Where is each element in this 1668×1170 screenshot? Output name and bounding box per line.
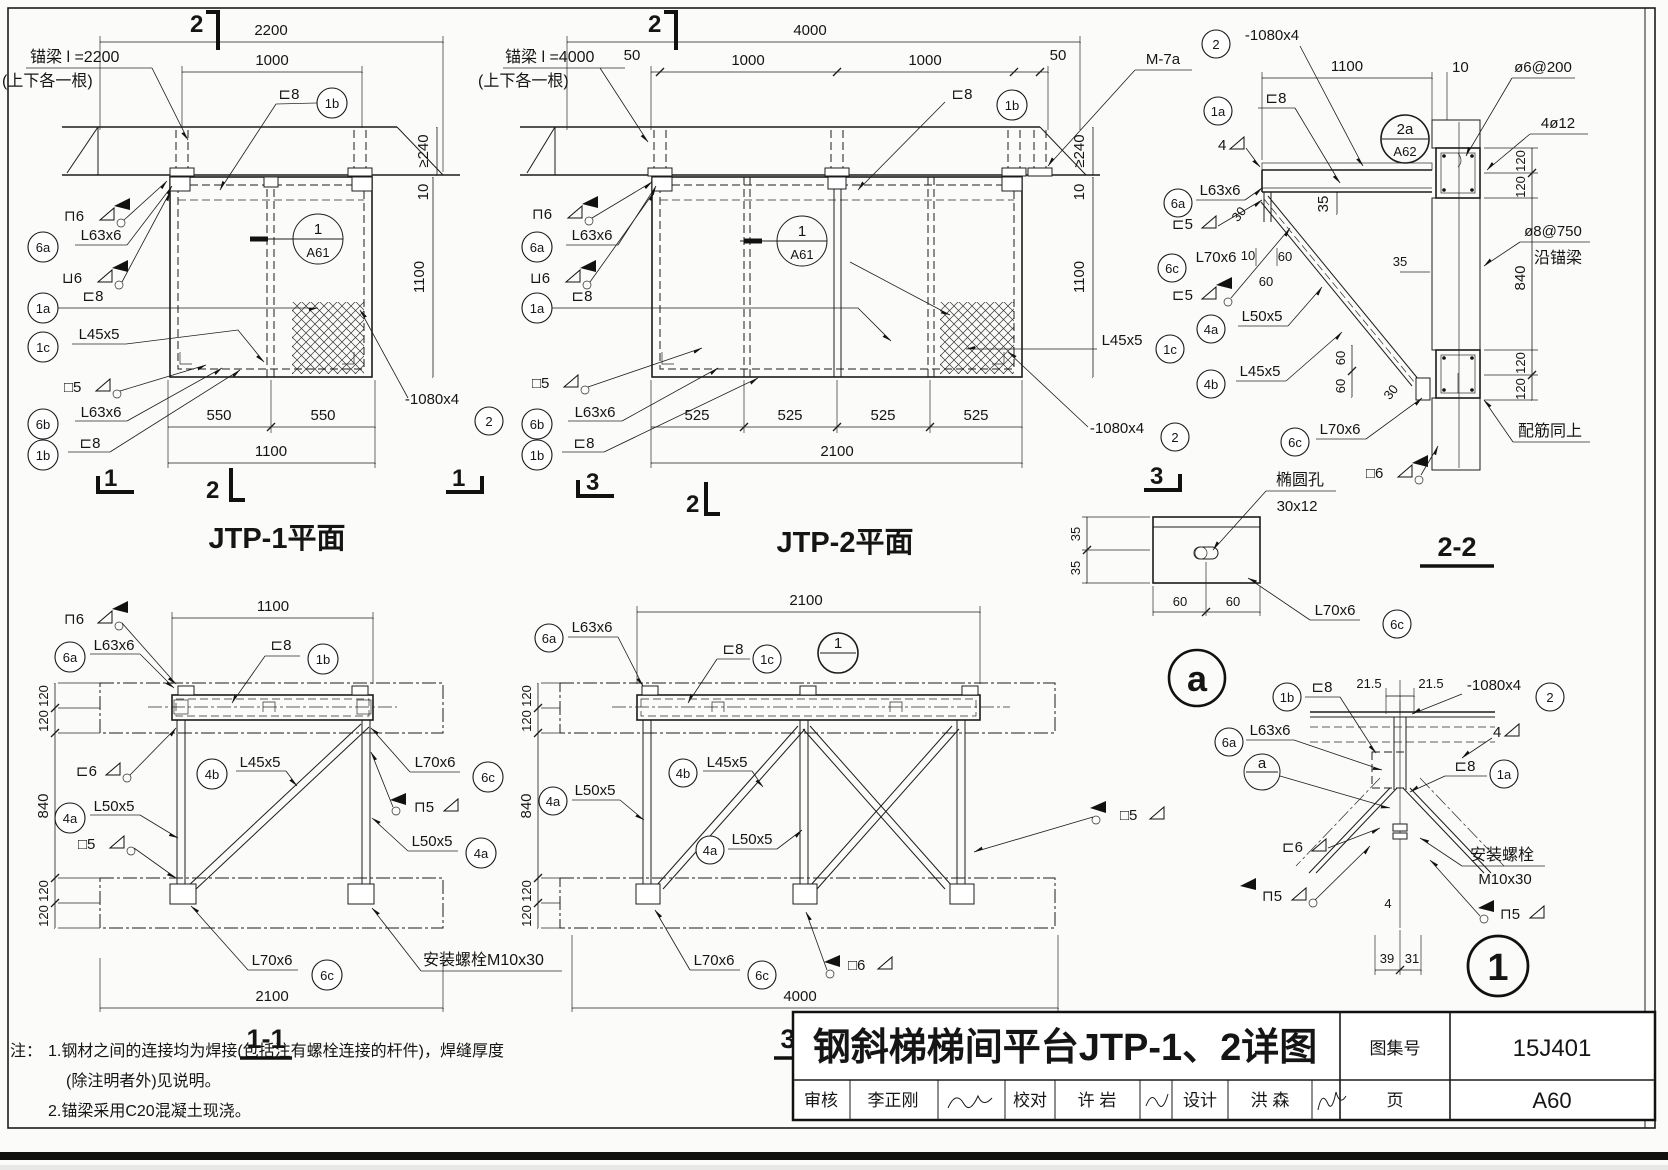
svg-text:a: a bbox=[1258, 755, 1267, 772]
callout-4a-left: 4a bbox=[539, 787, 567, 815]
rebar-phi6: ø6@200 bbox=[1514, 59, 1572, 76]
svg-text:10: 10 bbox=[415, 184, 432, 201]
svg-text:⊏8: ⊏8 bbox=[723, 641, 744, 658]
weld-6-top: ⊓6 bbox=[64, 181, 167, 227]
svg-text:a: a bbox=[1187, 658, 1208, 699]
callout-1c: 1c bbox=[28, 332, 58, 362]
svg-text:4b: 4b bbox=[1204, 377, 1218, 392]
svg-text:840: 840 bbox=[1512, 265, 1529, 290]
title-block: 钢斜梯梯间平台JTP-1、2详图 图集号 15J401 审核 李正刚 校对 许 … bbox=[793, 1012, 1655, 1120]
detail-ref-a61: 1 A61 bbox=[740, 216, 827, 266]
design-name: 洪 森 bbox=[1251, 1091, 1290, 1110]
svg-text:120: 120 bbox=[36, 685, 51, 707]
svg-text:⊏8: ⊏8 bbox=[271, 637, 292, 654]
svg-text:525: 525 bbox=[870, 407, 895, 424]
svg-text:120: 120 bbox=[519, 710, 534, 732]
svg-text:120: 120 bbox=[519, 905, 534, 927]
svg-text:6b: 6b bbox=[530, 417, 544, 432]
svg-text:1: 1 bbox=[104, 465, 117, 492]
svg-text:6c: 6c bbox=[481, 770, 495, 785]
svg-text:1: 1 bbox=[834, 635, 842, 652]
svg-text:1b: 1b bbox=[36, 448, 50, 463]
detail-ref-a62: 2a A62 bbox=[1381, 115, 1429, 163]
svg-text:6a: 6a bbox=[63, 650, 78, 665]
callout-6a: 6a bbox=[28, 232, 58, 262]
weld-4: 4 bbox=[1462, 724, 1519, 758]
svg-text:1b: 1b bbox=[1280, 690, 1294, 705]
weld-6-left: ⊏6 bbox=[1282, 828, 1380, 856]
svg-text:⊓5: ⊓5 bbox=[1262, 888, 1282, 905]
svg-text:⊓6: ⊓6 bbox=[532, 206, 552, 223]
svg-text:6a: 6a bbox=[530, 240, 545, 255]
svg-text:≥240: ≥240 bbox=[415, 134, 432, 167]
callout-1b: 1b bbox=[997, 90, 1027, 120]
svg-text:120: 120 bbox=[1513, 378, 1528, 400]
atlas-label: 图集号 bbox=[1370, 1039, 1421, 1058]
callout-6a: 6a bbox=[522, 232, 552, 262]
weld-6-box: □6 bbox=[806, 912, 892, 978]
svg-text:4a: 4a bbox=[474, 846, 489, 861]
svg-text:6b: 6b bbox=[36, 417, 50, 432]
svg-text:1000: 1000 bbox=[908, 52, 941, 69]
svg-text:6c: 6c bbox=[755, 968, 769, 983]
svg-text:6c: 6c bbox=[320, 968, 334, 983]
svg-text:L50x5: L50x5 bbox=[1242, 308, 1283, 325]
svg-text:1: 1 bbox=[798, 223, 806, 240]
svg-text:L45x5: L45x5 bbox=[1240, 363, 1281, 380]
svg-text:31: 31 bbox=[1405, 951, 1419, 966]
svg-text:L50x5: L50x5 bbox=[575, 782, 616, 799]
svg-text:30x12: 30x12 bbox=[1277, 498, 1318, 515]
notes-line1: 1.钢材之间的连接均为焊接(包括注有螺栓连接的杆件)，焊缝厚度 bbox=[48, 1042, 504, 1060]
weld-5: □5 bbox=[64, 365, 206, 398]
svg-text:6a: 6a bbox=[36, 240, 51, 255]
svg-text:⊔6: ⊔6 bbox=[62, 270, 82, 287]
svg-text:L63x6: L63x6 bbox=[572, 619, 613, 636]
check-name: 许 岩 bbox=[1078, 1091, 1117, 1110]
svg-text:120: 120 bbox=[36, 905, 51, 927]
svg-text:L63x6: L63x6 bbox=[572, 227, 613, 244]
part-channel8: ⊏8 bbox=[279, 86, 300, 103]
svg-text:35: 35 bbox=[1315, 196, 1332, 213]
review-name: 李正刚 bbox=[868, 1091, 919, 1110]
rebar-same: 配筋同上 bbox=[1518, 422, 1582, 440]
svg-text:2100: 2100 bbox=[820, 443, 853, 460]
sheet-title: 钢斜梯梯间平台JTP-1、2详图 bbox=[813, 1027, 1318, 1069]
svg-text:120: 120 bbox=[1513, 150, 1528, 172]
svg-text:⊓5: ⊓5 bbox=[414, 799, 434, 816]
rebar-phi8: ø8@750 bbox=[1524, 223, 1582, 240]
svg-text:1c: 1c bbox=[1163, 342, 1177, 357]
svg-text:□5: □5 bbox=[1120, 807, 1137, 824]
svg-text:⊏5: ⊏5 bbox=[1172, 287, 1193, 304]
svg-text:1b: 1b bbox=[316, 652, 330, 667]
svg-text:-1080x4: -1080x4 bbox=[1090, 420, 1144, 437]
svg-text:4a: 4a bbox=[703, 843, 718, 858]
svg-text:L50x5: L50x5 bbox=[732, 831, 773, 848]
rebar-4phi12: 4ø12 bbox=[1541, 115, 1575, 132]
svg-text:2: 2 bbox=[686, 491, 699, 518]
callout-6c-right: 6c bbox=[473, 762, 503, 792]
callout-4a-right: 4a bbox=[466, 838, 496, 868]
section-mark-2-top: 2 bbox=[190, 11, 218, 50]
weld-5: □5 bbox=[532, 348, 702, 394]
svg-text:6c: 6c bbox=[1165, 261, 1179, 276]
svg-text:L45x5: L45x5 bbox=[79, 326, 120, 343]
svg-text:35: 35 bbox=[1068, 561, 1083, 575]
svg-text:L70x6: L70x6 bbox=[1196, 249, 1237, 266]
callout-6c: 6c bbox=[1383, 610, 1411, 638]
svg-text:30: 30 bbox=[1380, 382, 1401, 403]
svg-text:2: 2 bbox=[648, 11, 661, 38]
notes-line3: 2.锚梁采用C20混凝土现浇。 bbox=[48, 1102, 251, 1120]
svg-text:(上下各一根): (上下各一根) bbox=[2, 72, 93, 90]
svg-text:525: 525 bbox=[963, 407, 988, 424]
jtp2-title: JTP-2平面 bbox=[777, 527, 914, 559]
svg-text:⊏8: ⊏8 bbox=[1312, 679, 1333, 696]
svg-text:35: 35 bbox=[1068, 527, 1083, 541]
callout-4a: 4a bbox=[1197, 315, 1225, 343]
svg-text:6a: 6a bbox=[1171, 196, 1186, 211]
callout-6c-upper: 6c bbox=[1158, 254, 1186, 282]
svg-text:1100: 1100 bbox=[255, 443, 287, 460]
callout-6b: 6b bbox=[28, 409, 58, 439]
callout-2: 2 bbox=[1161, 423, 1189, 451]
svg-text:⊓6: ⊓6 bbox=[64, 611, 84, 628]
callout-1b-2: 1b bbox=[28, 440, 58, 470]
dim-2200: 2200 bbox=[254, 22, 287, 39]
svg-text:□5: □5 bbox=[532, 375, 549, 392]
callout-1b: 1b bbox=[308, 644, 338, 674]
svg-text:60: 60 bbox=[1173, 594, 1187, 609]
svg-text:50: 50 bbox=[624, 47, 641, 64]
svg-text:21.5: 21.5 bbox=[1356, 676, 1381, 691]
callout-1c: 1c bbox=[753, 645, 781, 673]
svg-text:-1080x4: -1080x4 bbox=[1467, 677, 1521, 694]
svg-text:⊏5: ⊏5 bbox=[1172, 216, 1193, 233]
svg-text:2-2: 2-2 bbox=[1437, 532, 1476, 562]
svg-text:1100: 1100 bbox=[257, 598, 289, 615]
svg-text:L70x6: L70x6 bbox=[1320, 421, 1361, 438]
svg-text:2a: 2a bbox=[1397, 121, 1414, 138]
callout-2: 2 bbox=[1536, 683, 1564, 711]
section-mark-1-right: 1 bbox=[446, 465, 482, 492]
svg-text:4: 4 bbox=[1493, 724, 1501, 741]
detail-1: 1b ⊏8 21.521.5 -1080x4 2 6a L63x6 a 4 ⊏8… bbox=[1215, 676, 1564, 996]
notes-line2: (除注明者外)见说明。 bbox=[66, 1072, 221, 1090]
svg-text:1a: 1a bbox=[36, 301, 51, 316]
callout-1b: 1b bbox=[317, 88, 347, 118]
svg-text:2100: 2100 bbox=[255, 988, 288, 1005]
svg-text:30: 30 bbox=[1228, 204, 1249, 225]
svg-text:1: 1 bbox=[314, 221, 322, 238]
svg-text:1: 1 bbox=[452, 465, 465, 492]
svg-text:10: 10 bbox=[1071, 184, 1088, 201]
svg-text:L50x5: L50x5 bbox=[94, 798, 135, 815]
section-mark-3-left: 3 bbox=[578, 469, 614, 496]
svg-text:4a: 4a bbox=[1204, 322, 1219, 337]
callout-6a: 6a bbox=[1215, 728, 1243, 756]
anchor-beam-note: 锚梁 l =2200 bbox=[30, 48, 119, 66]
section-2-2: 2 -1080x4 1100 10 ø6@200 4ø12 1a ⊏8 4 2a… bbox=[1158, 27, 1590, 566]
callout-6a: 6a bbox=[55, 642, 85, 672]
hatch-area bbox=[292, 302, 364, 374]
svg-text:4a: 4a bbox=[63, 811, 78, 826]
svg-text:60: 60 bbox=[1278, 249, 1292, 264]
svg-text:⊏6: ⊏6 bbox=[1282, 839, 1303, 856]
svg-text:525: 525 bbox=[684, 407, 709, 424]
section-1-1: 1100 ⊓6 6a L63x6 ⊏8 1b 120 120 840 120 1… bbox=[35, 598, 562, 1058]
svg-text:L70x6: L70x6 bbox=[1315, 602, 1356, 619]
notes: 注： 1.钢材之间的连接均为焊接(包括注有螺栓连接的杆件)，焊缝厚度 (除注明者… bbox=[10, 1042, 504, 1120]
detail-ref-a: a bbox=[1244, 754, 1280, 790]
callout-1b-2: 1b bbox=[522, 440, 552, 470]
svg-text:4000: 4000 bbox=[793, 22, 826, 39]
svg-text:⊏8: ⊏8 bbox=[572, 288, 593, 305]
callout-1a: 1a bbox=[522, 293, 552, 323]
check-label: 校对 bbox=[1013, 1091, 1047, 1110]
svg-text:⊏8: ⊏8 bbox=[1455, 758, 1476, 775]
callout-6c-lower: 6c bbox=[1281, 428, 1309, 456]
svg-text:39: 39 bbox=[1380, 951, 1394, 966]
svg-text:525: 525 bbox=[777, 407, 802, 424]
jtp2-plan: 1 A61 4000 50 1000 1000 50 2 锚梁 l =4000 … bbox=[478, 11, 1192, 559]
svg-text:840: 840 bbox=[35, 793, 52, 818]
svg-text:≥240: ≥240 bbox=[1071, 134, 1088, 167]
rebar-column-upper bbox=[1436, 148, 1480, 198]
svg-text:L70x6: L70x6 bbox=[694, 952, 735, 969]
rebar-along: 沿锚梁 bbox=[1534, 249, 1582, 267]
part-plate: -1080x4 bbox=[405, 391, 459, 408]
svg-text:4: 4 bbox=[1218, 137, 1226, 154]
svg-text:2: 2 bbox=[190, 11, 203, 38]
part-m7a: M-7a bbox=[1146, 51, 1181, 68]
svg-text:2: 2 bbox=[206, 477, 219, 504]
svg-text:A62: A62 bbox=[1393, 144, 1416, 159]
svg-text:L45x5: L45x5 bbox=[707, 754, 748, 771]
svg-text:60: 60 bbox=[1226, 594, 1240, 609]
svg-text:L63x6: L63x6 bbox=[575, 404, 616, 421]
svg-text:⊓6: ⊓6 bbox=[64, 208, 84, 225]
svg-text:1a: 1a bbox=[1211, 104, 1226, 119]
bolt-full-label: 安装螺栓M10x30 bbox=[423, 951, 544, 969]
svg-text:60: 60 bbox=[1259, 274, 1273, 289]
drawing-sheet: 1 A61 2200 1000 2 锚梁 l =2200 (上下各一根) ⊏8 … bbox=[0, 0, 1668, 1165]
svg-text:4b: 4b bbox=[205, 767, 219, 782]
callout-6a: 6a bbox=[1164, 189, 1192, 217]
anchor-beam-note: 锚梁 l =4000 bbox=[505, 48, 594, 66]
drawing-canvas: 1 A61 2200 1000 2 锚梁 l =2200 (上下各一根) ⊏8 … bbox=[0, 0, 1668, 1165]
callout-1a: 1a bbox=[1490, 760, 1518, 788]
anchor-bolts bbox=[648, 130, 1052, 176]
weld-6-left: ⊏6 bbox=[76, 728, 176, 782]
callout-4a-mid: 4a bbox=[696, 836, 724, 864]
jtp1-plan: 1 A61 2200 1000 2 锚梁 l =2200 (上下各一根) ⊏8 … bbox=[2, 11, 503, 555]
svg-text:120: 120 bbox=[36, 710, 51, 732]
svg-text:4: 4 bbox=[1384, 896, 1391, 911]
svg-text:L63x6: L63x6 bbox=[81, 404, 122, 421]
detail-a-badge: a bbox=[1169, 650, 1225, 706]
callout-2: 2 bbox=[1202, 30, 1230, 58]
callout-4b: 4b bbox=[197, 759, 227, 789]
svg-text:⊏8: ⊏8 bbox=[1266, 90, 1287, 107]
svg-text:550: 550 bbox=[310, 407, 335, 424]
svg-text:L70x6: L70x6 bbox=[252, 952, 293, 969]
svg-text:1b: 1b bbox=[1005, 98, 1019, 113]
svg-text:1a: 1a bbox=[1497, 767, 1512, 782]
atlas-number: 15J401 bbox=[1513, 1035, 1592, 1062]
svg-text:4000: 4000 bbox=[783, 988, 816, 1005]
svg-text:60: 60 bbox=[1333, 351, 1348, 365]
hatch-area bbox=[940, 302, 1014, 374]
svg-text:10: 10 bbox=[1241, 248, 1255, 263]
svg-text:2: 2 bbox=[1171, 430, 1178, 445]
svg-text:6a: 6a bbox=[542, 631, 557, 646]
svg-text:⊓5: ⊓5 bbox=[1500, 906, 1520, 923]
svg-text:6c: 6c bbox=[1288, 435, 1302, 450]
svg-text:□6: □6 bbox=[1366, 465, 1383, 482]
page-label: 页 bbox=[1387, 1091, 1404, 1110]
svg-text:1c: 1c bbox=[36, 340, 50, 355]
notes-prefix: 注： bbox=[10, 1042, 42, 1060]
svg-text:2: 2 bbox=[1546, 690, 1553, 705]
weld-5-left: ⊓5 bbox=[1240, 846, 1370, 907]
svg-text:-1080x4: -1080x4 bbox=[1245, 27, 1299, 44]
svg-text:⊏6: ⊏6 bbox=[76, 763, 97, 780]
weld-5-b: ⊏5 bbox=[1172, 228, 1290, 306]
svg-text:1100: 1100 bbox=[1331, 58, 1363, 75]
svg-text:35: 35 bbox=[1393, 254, 1407, 269]
svg-text:A61: A61 bbox=[306, 245, 329, 260]
callout-1a: 1a bbox=[1204, 97, 1232, 125]
svg-text:2: 2 bbox=[1212, 37, 1219, 52]
weld-5-right: □5 bbox=[974, 801, 1164, 852]
rebar-column-lower bbox=[1436, 350, 1480, 398]
svg-text:840: 840 bbox=[518, 793, 535, 818]
svg-text:4b: 4b bbox=[676, 766, 690, 781]
svg-text:L63x6: L63x6 bbox=[1250, 722, 1291, 739]
callout-6b: 6b bbox=[522, 409, 552, 439]
svg-text:3: 3 bbox=[586, 469, 599, 496]
detail-ref-1: 1 bbox=[818, 633, 858, 673]
weld-4: 4 bbox=[1218, 137, 1260, 167]
section-2-2-title: 2-2 bbox=[1420, 532, 1494, 566]
callout-6c-bottom: 6c bbox=[748, 961, 776, 989]
svg-text:L63x6: L63x6 bbox=[1200, 182, 1241, 199]
svg-text:6a: 6a bbox=[1222, 735, 1237, 750]
svg-text:120: 120 bbox=[519, 685, 534, 707]
detail-1-badge: 1 bbox=[1468, 936, 1528, 996]
review-label: 审核 bbox=[804, 1091, 838, 1110]
callout-6c-bottom: 6c bbox=[312, 960, 342, 990]
svg-text:120: 120 bbox=[1513, 352, 1528, 374]
callout-4b: 4b bbox=[1197, 370, 1225, 398]
svg-text:⊔6: ⊔6 bbox=[530, 270, 550, 287]
callout-1b: 1b bbox=[1273, 683, 1301, 711]
svg-text:550: 550 bbox=[206, 407, 231, 424]
svg-text:⊏8: ⊏8 bbox=[83, 288, 104, 305]
svg-text:1b: 1b bbox=[325, 96, 339, 111]
svg-text:6c: 6c bbox=[1390, 617, 1404, 632]
jtp1-title: JTP-1平面 bbox=[209, 523, 346, 555]
page-number: A60 bbox=[1532, 1088, 1571, 1113]
svg-text:1: 1 bbox=[1487, 947, 1508, 989]
svg-text:50: 50 bbox=[1050, 47, 1067, 64]
section-mark-1-left: 1 bbox=[98, 465, 134, 492]
callout-2: 2 bbox=[475, 407, 503, 435]
svg-text:L63x6: L63x6 bbox=[94, 637, 135, 654]
svg-text:4a: 4a bbox=[546, 794, 561, 809]
weld-6-top: ⊓6 bbox=[532, 182, 652, 225]
svg-text:2100: 2100 bbox=[789, 592, 822, 609]
bolt-label: 安装螺栓 bbox=[1470, 846, 1534, 864]
svg-text:A61: A61 bbox=[790, 247, 813, 262]
callout-1a: 1a bbox=[28, 293, 58, 323]
svg-text:□6: □6 bbox=[848, 957, 865, 974]
svg-text:120: 120 bbox=[36, 880, 51, 902]
svg-text:1100: 1100 bbox=[411, 261, 428, 293]
weld-6-box: □6 bbox=[1366, 446, 1438, 484]
detail-ref-a61: 1 A61 bbox=[250, 214, 343, 264]
svg-text:120: 120 bbox=[519, 880, 534, 902]
svg-text:L45x5: L45x5 bbox=[240, 754, 281, 771]
svg-text:⊏8: ⊏8 bbox=[574, 435, 595, 452]
svg-text:21.5: 21.5 bbox=[1418, 676, 1443, 691]
callout-4b: 4b bbox=[669, 759, 697, 787]
svg-text:(上下各一根): (上下各一根) bbox=[478, 72, 569, 90]
svg-text:1a: 1a bbox=[530, 301, 545, 316]
svg-text:2: 2 bbox=[485, 414, 492, 429]
section-mark-3-right: 3 bbox=[1144, 463, 1180, 490]
callout-6a: 6a bbox=[535, 624, 563, 652]
svg-text:120: 120 bbox=[1513, 176, 1528, 198]
section-mark-2-top: 2 bbox=[648, 11, 676, 50]
section-3-3: 2100 6a L63x6 ⊏8 1c 1 120 120 840 120 12… bbox=[518, 592, 1164, 1058]
detail-oval-hole: 椭圆孔 30x12 35 35 6060 L70x6 6c bbox=[1068, 471, 1411, 638]
svg-text:3: 3 bbox=[1150, 463, 1163, 490]
dim-1000: 1000 bbox=[255, 52, 288, 69]
svg-text:L63x6: L63x6 bbox=[81, 227, 122, 244]
svg-text:L70x6: L70x6 bbox=[415, 754, 456, 771]
svg-text:10: 10 bbox=[1452, 59, 1469, 76]
svg-text:1c: 1c bbox=[760, 652, 774, 667]
svg-text:1b: 1b bbox=[530, 448, 544, 463]
hole-label: 椭圆孔 bbox=[1276, 471, 1324, 489]
section-mark-2-bottom: 2 bbox=[206, 468, 245, 504]
svg-text:⊏8: ⊏8 bbox=[952, 86, 973, 103]
design-label: 设计 bbox=[1183, 1091, 1217, 1110]
weld-5-left: □5 bbox=[78, 836, 176, 878]
section-mark-2-bottom: 2 bbox=[686, 482, 720, 518]
callout-4a-left: 4a bbox=[55, 803, 85, 833]
svg-text:⊏8: ⊏8 bbox=[80, 435, 101, 452]
svg-text:□5: □5 bbox=[64, 379, 81, 396]
svg-text:1100: 1100 bbox=[1071, 261, 1088, 293]
svg-text:1000: 1000 bbox=[731, 52, 764, 69]
svg-text:60: 60 bbox=[1333, 379, 1348, 393]
svg-text:L45x5: L45x5 bbox=[1102, 332, 1143, 349]
svg-text:M10x30: M10x30 bbox=[1478, 871, 1531, 888]
callout-1c: 1c bbox=[1156, 335, 1184, 363]
svg-text:□5: □5 bbox=[78, 836, 95, 853]
svg-text:L50x5: L50x5 bbox=[412, 833, 453, 850]
